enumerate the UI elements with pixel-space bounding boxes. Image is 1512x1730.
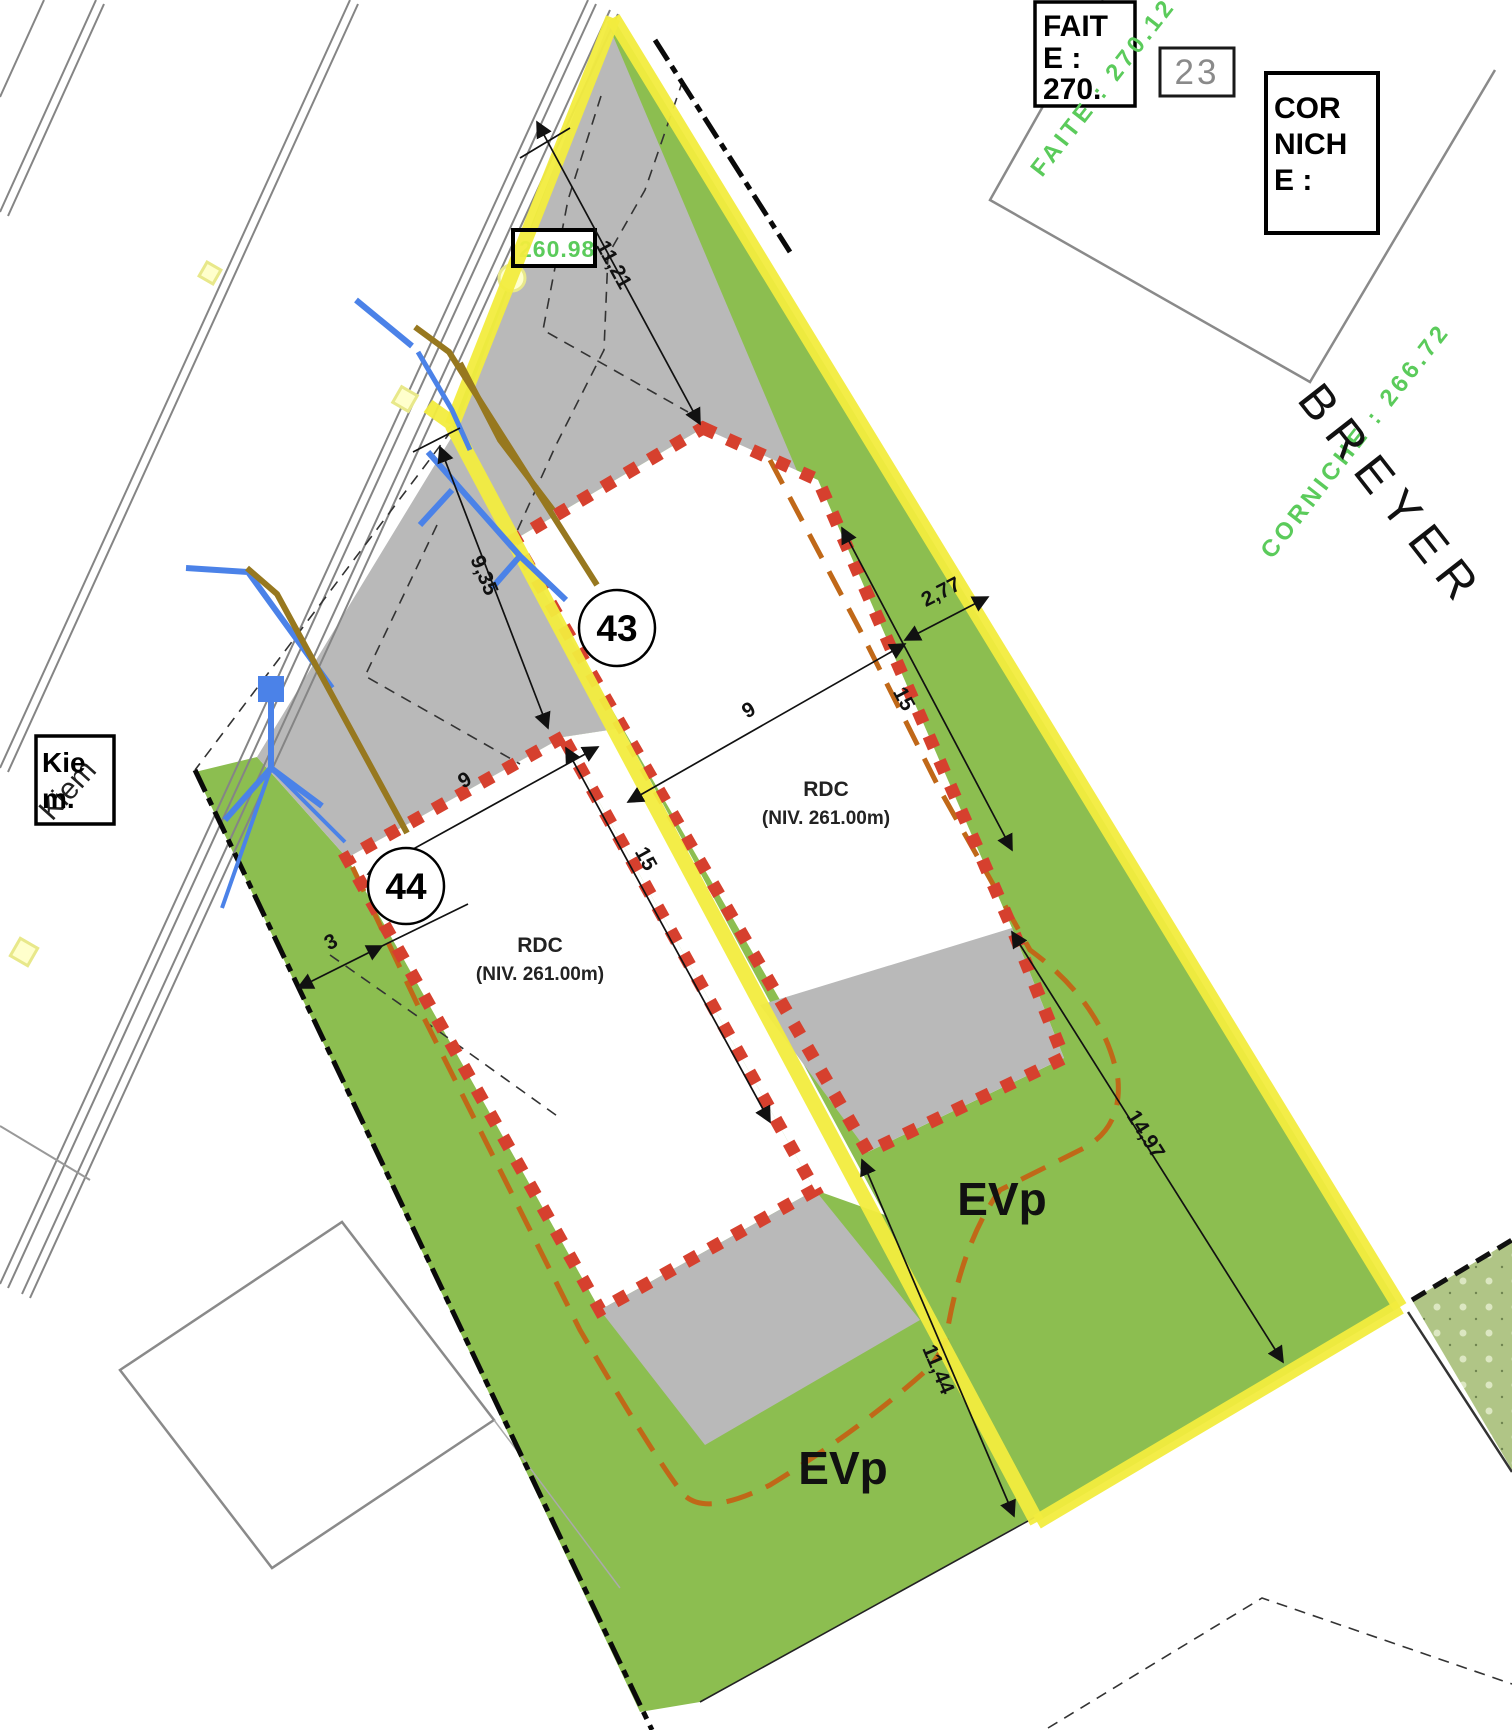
svg-text:COR: COR	[1274, 92, 1341, 125]
parcel-44-number: 44	[385, 866, 427, 907]
building-44-level: (NIV. 261.00m)	[476, 964, 604, 985]
evp-label-right: EVp	[957, 1173, 1046, 1225]
svg-text:E :: E :	[1274, 164, 1312, 197]
svg-text:270.: 270.	[1043, 73, 1101, 106]
parcel-44-marker: 44	[368, 848, 444, 924]
parcel-23-number: 23	[1175, 53, 1220, 92]
svg-text:Kie: Kie	[42, 747, 86, 778]
utility-box-blue	[258, 676, 284, 702]
parcel-43-number: 43	[596, 608, 637, 649]
building-43-rdc: RDC	[803, 778, 849, 801]
vegetation-parcel	[1412, 1240, 1512, 1470]
building-43-level: (NIV. 261.00m)	[762, 808, 890, 829]
svg-text:FAIT: FAIT	[1043, 10, 1108, 43]
parcel-43-marker: 43	[579, 590, 655, 666]
svg-text:NICH: NICH	[1274, 128, 1347, 161]
svg-text:m.: m.	[42, 783, 75, 814]
site-plan: 260.98	[0, 0, 1512, 1730]
evp-label-left: EVp	[798, 1442, 887, 1494]
building-44-rdc: RDC	[517, 934, 563, 957]
svg-text:E :: E :	[1043, 42, 1081, 75]
site-plan-canvas: 260.98	[0, 0, 1512, 1730]
